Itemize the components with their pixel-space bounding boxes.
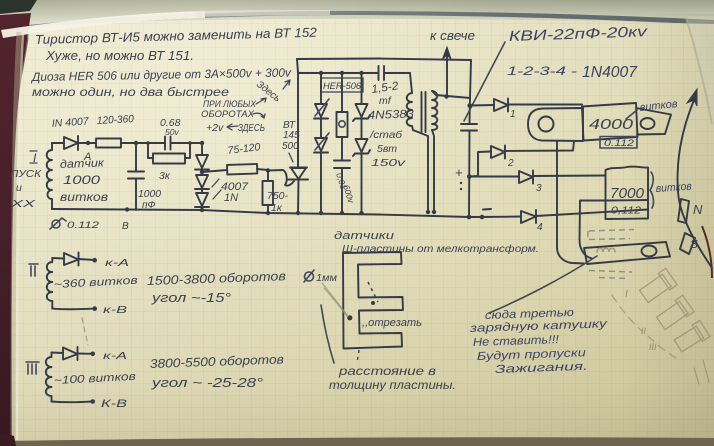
svg-text:4: 4 [537, 222, 543, 233]
svg-text:1: 1 [510, 109, 516, 120]
svg-text:угол ~-15°: угол ~-15° [151, 291, 231, 305]
svg-text:1N4007: 1N4007 [582, 64, 638, 81]
svg-text:к-В: к-В [103, 304, 127, 316]
svg-text:ЗДЕСЬ: ЗДЕСЬ [238, 122, 265, 134]
svg-text:и: и [16, 182, 22, 194]
svg-text:датчики: датчики [334, 230, 394, 242]
svg-text:50v: 50v [165, 127, 179, 137]
svg-text:750-: 750- [267, 190, 289, 202]
svg-text:В: В [122, 221, 129, 232]
svg-text:Хуже, но можно ВТ 151.: Хуже, но можно ВТ 151. [45, 48, 194, 63]
svg-text:ОБОРОТАХ: ОБОРОТАХ [201, 109, 255, 120]
svg-text:толщину пластины.: толщину пластины. [329, 380, 456, 392]
svg-text:0.112: 0.112 [67, 220, 100, 231]
svg-text:угол ~ -25-28°: угол ~ -25-28° [151, 376, 263, 390]
svg-text:к свече: к свече [430, 29, 475, 43]
svg-text:mf: mf [379, 95, 392, 107]
svg-text:1-2-3-4 -: 1-2-3-4 - [507, 64, 577, 78]
svg-text:/стаб: /стаб [369, 129, 403, 141]
svg-text:150v: 150v [371, 157, 406, 169]
svg-text:120-360: 120-360 [97, 113, 135, 127]
svg-text:+: + [455, 165, 463, 180]
svg-text:витков: витков [655, 180, 692, 194]
svg-text:1000: 1000 [63, 175, 101, 187]
svg-text:1к: 1к [271, 202, 283, 214]
svg-text:5вт: 5вт [377, 143, 397, 155]
svg-text:пФ: пФ [142, 200, 156, 211]
svg-text:+2v: +2v [206, 122, 224, 134]
svg-text:1000: 1000 [138, 189, 161, 200]
svg-text:витков: витков [60, 192, 108, 204]
svg-text:1N: 1N [224, 192, 238, 204]
svg-text:0.112: 0.112 [604, 138, 634, 148]
svg-text:2: 2 [507, 158, 514, 169]
svg-text:III: III [649, 342, 657, 352]
svg-text:3: 3 [536, 183, 542, 194]
svg-text:датчик: датчик [60, 157, 105, 171]
svg-text:к-А: к-А [105, 257, 129, 269]
svg-text:0,112: 0,112 [611, 205, 641, 217]
svg-text:,,отрезать: ,,отрезать [362, 317, 422, 329]
svg-text:I: I [625, 289, 628, 300]
svg-text:1мм: 1мм [316, 273, 337, 284]
svg-text:S: S [690, 237, 698, 251]
svg-text:7000: 7000 [610, 185, 645, 202]
svg-text:к-А: к-А [103, 350, 127, 362]
svg-text:ХХ: ХХ [9, 198, 36, 210]
svg-text:расстояние в: расстояние в [338, 366, 436, 378]
svg-text:3к: 3к [159, 170, 171, 182]
svg-text:ПУСК: ПУСК [10, 168, 42, 180]
svg-text:К-В: К-В [101, 398, 127, 410]
svg-text:можно один, но два быстрее: можно один, но два быстрее [32, 85, 229, 99]
svg-text:N: N [693, 202, 703, 217]
svg-text:500: 500 [282, 141, 299, 152]
